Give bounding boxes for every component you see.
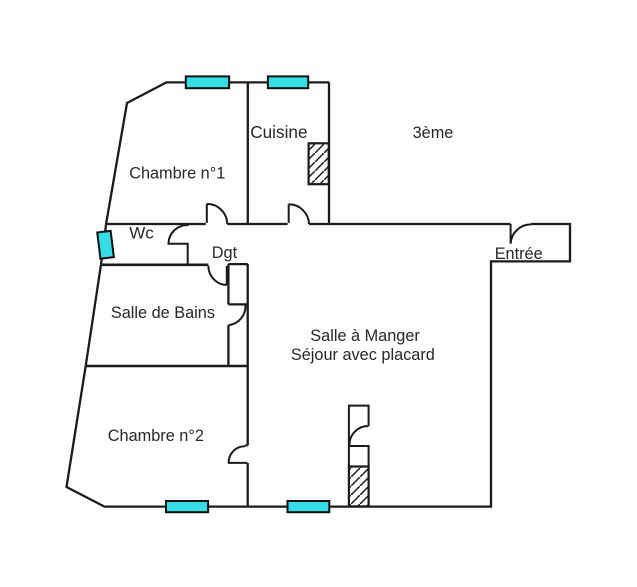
svg-text:Entrée: Entrée [495,245,543,263]
svg-text:Salle à Manger: Salle à Manger [310,327,420,345]
svg-text:Wc: Wc [129,223,154,242]
svg-text:Chambre n°1: Chambre n°1 [129,165,225,183]
svg-text:Dgt: Dgt [212,244,238,262]
svg-text:Séjour avec placard: Séjour avec placard [291,346,435,364]
svg-text:Cuisine: Cuisine [250,122,307,142]
svg-text:Salle de Bains: Salle de Bains [111,304,215,322]
svg-text:3ème: 3ème [413,124,454,142]
svg-text:Chambre n°2: Chambre n°2 [108,427,204,445]
